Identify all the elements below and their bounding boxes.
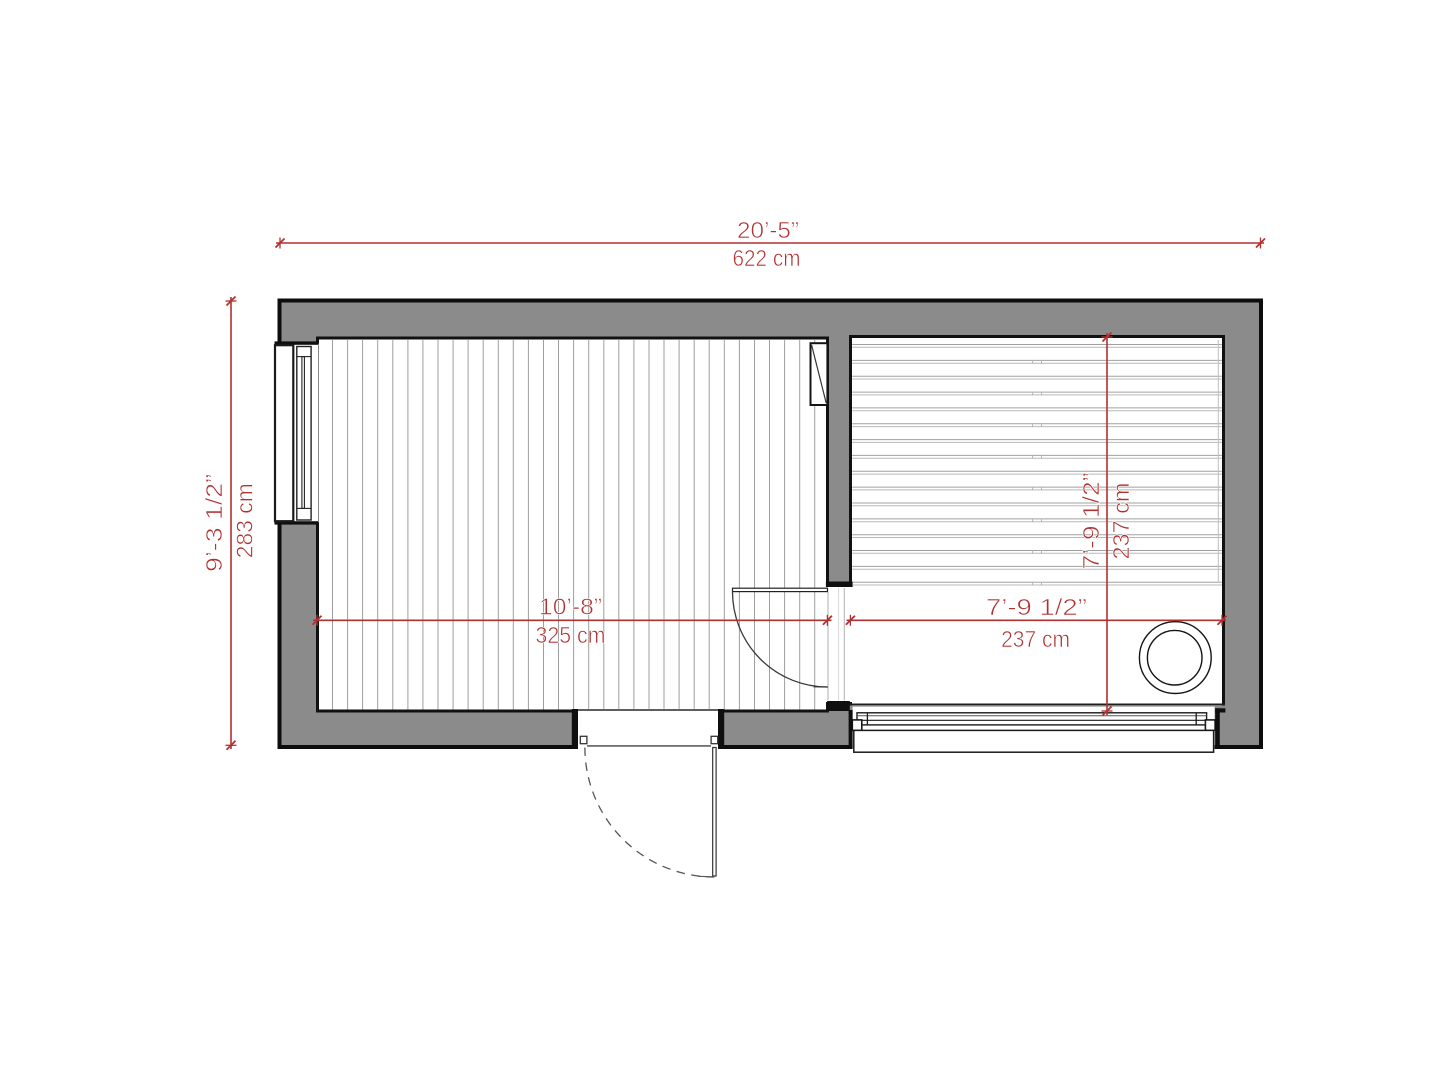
- svg-text:283 cm: 283 cm: [232, 483, 258, 558]
- svg-text:10’-8”: 10’-8”: [539, 594, 602, 620]
- svg-text:325 cm: 325 cm: [536, 622, 606, 648]
- svg-text:7’-9 1/2”: 7’-9 1/2”: [1078, 473, 1104, 570]
- svg-text:7’-9 1/2”: 7’-9 1/2”: [986, 594, 1087, 620]
- svg-text:237 cm: 237 cm: [1001, 626, 1070, 652]
- svg-text:9’-3 1/2”: 9’-3 1/2”: [201, 474, 227, 572]
- svg-text:20’-5”: 20’-5”: [737, 217, 799, 243]
- svg-text:622 cm: 622 cm: [733, 245, 801, 271]
- svg-text:237 cm: 237 cm: [1108, 483, 1134, 560]
